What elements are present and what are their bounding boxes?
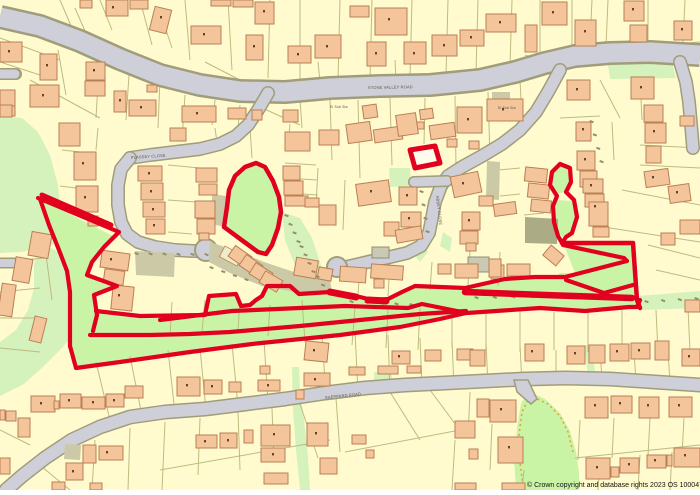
svg-text:© Crown copyright and database: © Crown copyright and database rights 20… (527, 481, 700, 489)
svg-text:STONE VALLEY ROAD: STONE VALLEY ROAD (368, 84, 413, 90)
svg-text:El Sub Sta: El Sub Sta (498, 106, 516, 110)
svg-text:El Sub Sta: El Sub Sta (330, 105, 348, 109)
